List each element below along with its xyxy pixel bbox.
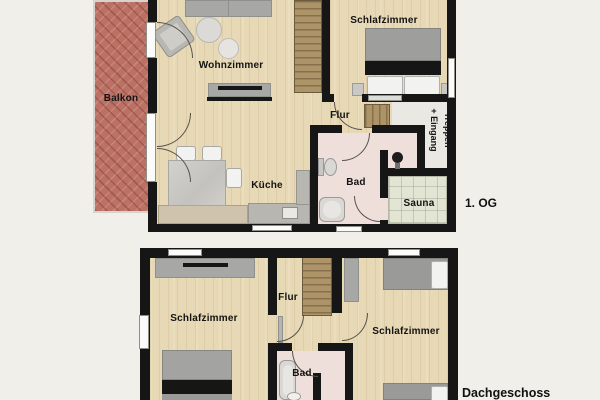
double-bed [365,28,441,94]
bath-window [336,226,362,232]
floor-label-og: 1. OG [465,196,497,210]
bed-pillow-right [404,76,440,95]
tv-screen [218,86,262,90]
attic-wall-bath-top-a [268,343,292,351]
wall-bath-left [310,125,318,224]
room-label-kueche: Küche [251,180,283,191]
washbasin-stand [395,163,400,169]
room-label-bad-dg: Bad [292,368,312,379]
room-label-treppen-eingang: Treppen + Eingang [418,102,454,158]
wall-sauna-top [380,168,447,176]
attic-bed-right-bottom-pillow [431,386,448,400]
attic-bed-left [162,350,232,400]
wall-sauna-left-b [380,220,388,224]
attic-sideboard-tv [183,263,228,267]
attic-bed-left-band [162,380,232,394]
attic-sideboard [155,258,255,278]
wall-left-c [148,182,157,224]
kitchen-counter-side [296,170,310,205]
attic-wall-bath-right [345,343,353,400]
wall-bedroom-south-a [322,94,334,102]
attic-wall-right [448,248,458,400]
treppen-label-line2: + Eingang [427,102,441,158]
room-label-flur-dg: Flur [278,292,298,303]
wall-left-a [148,0,157,22]
attic-bed-right-top-pillow [431,261,448,289]
room-label-balkon: Balkon [104,93,139,104]
sofa-cushion-divider [228,1,229,17]
room-label-schlafzimmer-dg-right: Schlafzimmer [372,326,439,337]
coffee-table-large [196,17,222,43]
wall-left-b [148,58,157,113]
attic-window-top-right [388,249,420,256]
bedroom-door-glazing [368,95,402,101]
attic-wall-bedroom-flur-a [268,258,277,315]
dining-chair-2 [202,146,222,161]
bed-blanket [365,28,441,61]
wall-bottom [148,224,456,232]
coffee-table-small [218,38,239,59]
attic-wall-flur-bedroom-right [332,258,342,313]
attic-wardrobe [344,258,359,302]
attic-floor-plan: Schlafzimmer Flur Bad Schlafzimmer Dachg… [0,240,600,400]
bed-pillow-left [367,76,403,95]
upper-staircase [294,0,322,93]
floorplan-canvas: Balkon Wohnzimmer Schlafzimmer Flur Küch… [0,0,600,400]
attic-bed-left-foot [162,394,232,400]
dining-chair-3 [226,168,242,188]
sofa [185,0,272,17]
balcony-floor [93,0,150,213]
toilet-bowl [324,158,337,176]
kitchen-counter-corner [248,203,310,224]
bathtub [319,197,345,222]
balcony-door-window-2 [146,113,156,182]
room-label-schlafzimmer-og: Schlafzimmer [350,15,417,26]
attic-wall-bedroom-flur-b [268,343,277,400]
wall-sauna-left-a [380,176,388,198]
room-label-flur-og: Flur [330,110,350,121]
washbasin [392,152,403,163]
attic-window-left [139,315,149,349]
room-label-bad-og: Bad [346,177,366,188]
attic-washbasin [287,392,301,400]
treppen-label-line1: Treppen [441,102,455,158]
room-label-schlafzimmer-dg-left: Schlafzimmer [170,313,237,324]
kitchen-sink [282,207,298,219]
attic-staircase [302,255,332,316]
room-label-wohnzimmer: Wohnzimmer [199,60,264,71]
wall-livingroom-bedroom [322,0,330,102]
attic-wall-bath-stub [313,373,321,400]
floor-label-dachgeschoss: Dachgeschoss [462,386,550,400]
bed-footband [365,61,441,75]
upper-floor-plan: Balkon Wohnzimmer Schlafzimmer Flur Küch… [0,0,600,240]
bedroom-window-right [448,58,455,98]
kitchen-counter-bottom [158,205,248,224]
wall-bath-top-b [372,125,417,133]
attic-window-top-left [168,249,202,256]
kitchen-window [252,225,292,231]
attic-bed-left-blanket [162,350,232,380]
room-label-sauna: Sauna [403,198,434,209]
bathtub-basin [323,201,341,218]
balcony-door-window-1 [146,22,156,58]
attic-bed-right-bottom [383,383,448,400]
attic-bed-right-top [383,258,448,290]
tv-soundbar [207,97,272,101]
